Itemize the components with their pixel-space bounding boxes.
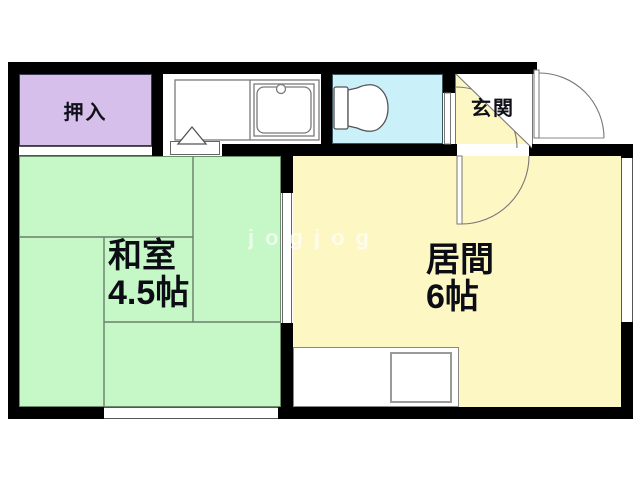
doorway-entrance-living (457, 144, 529, 156)
room-kitchen (163, 74, 321, 144)
counter-unit (390, 352, 452, 403)
wall-bottom (8, 407, 633, 419)
watermark: jogjog (248, 225, 380, 251)
living-room-name: 居間 (426, 242, 494, 279)
closet-label: 押入 (64, 96, 108, 125)
kitchen-step (170, 141, 220, 155)
wall-mid-horizontal (222, 144, 457, 156)
wall-left (8, 62, 19, 419)
wall-washitsu-living-lower (281, 323, 293, 407)
wall-washitsu-living-upper (281, 156, 293, 193)
wall-entrance-front (529, 144, 633, 156)
opening-washitsu-living (282, 193, 292, 323)
front-door (534, 70, 604, 138)
room-closet: 押入 (19, 74, 152, 146)
room-toilet (332, 74, 443, 144)
japanese-room-name: 和室 (108, 238, 189, 275)
japanese-room-size: 4.5帖 (108, 275, 189, 312)
wall-closet-kitchen (152, 62, 163, 156)
floor-plan: 押入 玄関 和室 4.5帖 居間 6帖 (0, 0, 640, 480)
window-south (104, 407, 278, 419)
window-east (621, 158, 633, 322)
wall-kitchen-toilet (321, 62, 332, 156)
wall-top (8, 62, 537, 74)
living-room-label: 居間 6帖 (426, 242, 494, 316)
closet-sliding-door (19, 146, 152, 156)
wall-toilet-entrance-upper (443, 62, 455, 93)
entrance-label: 玄関 (471, 92, 515, 121)
japanese-room-label: 和室 4.5帖 (108, 238, 189, 312)
doorway-toilet (443, 93, 455, 144)
living-room-size: 6帖 (426, 279, 494, 316)
